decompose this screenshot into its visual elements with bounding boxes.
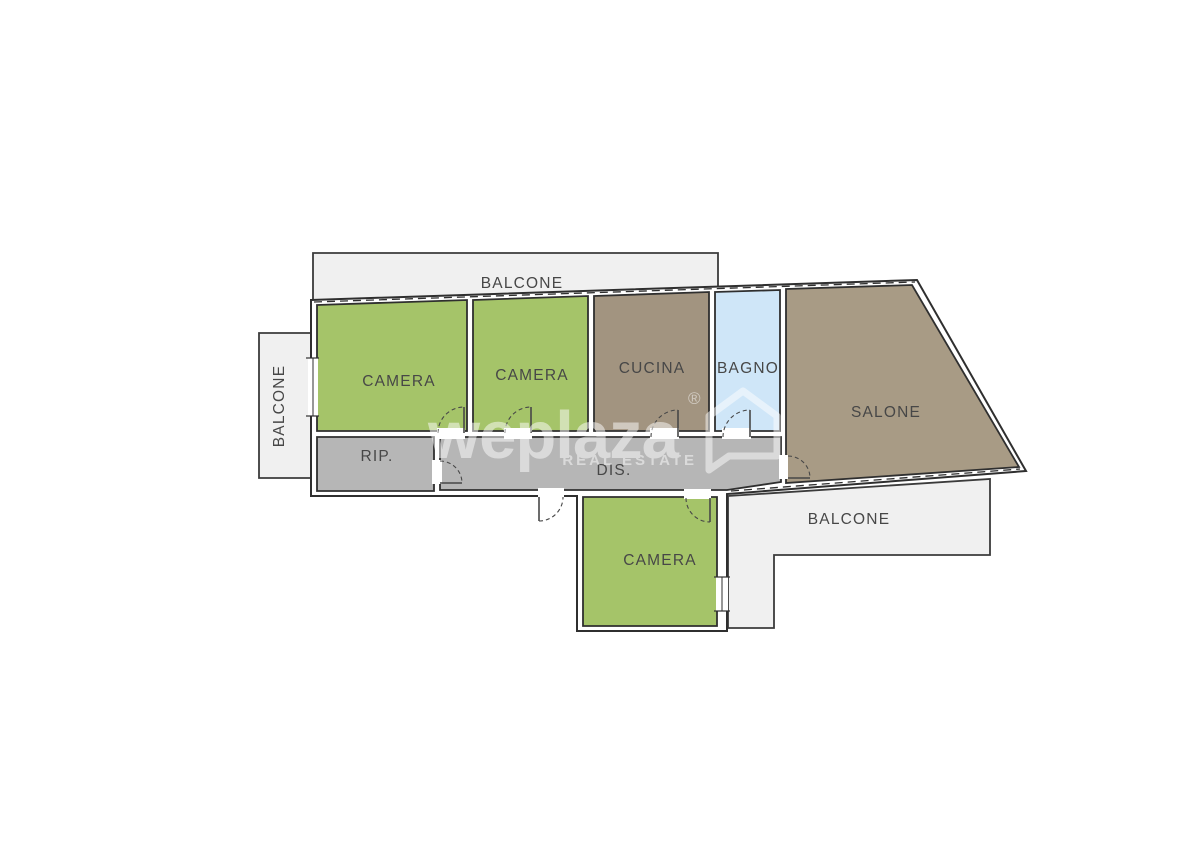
door-entrance	[539, 497, 563, 521]
label-camera-3: CAMERA	[623, 552, 697, 569]
watermark-tagline: REAL ESTATE	[562, 452, 697, 469]
label-salone: SALONE	[851, 404, 921, 421]
label-camera-1: CAMERA	[362, 373, 436, 390]
balcony-bottom	[728, 479, 990, 628]
floorplan-canvas: BALCONE BALCONE CAMERA CAMERA CUCINA BAG…	[0, 0, 1200, 848]
label-bagno: BAGNO	[717, 360, 779, 377]
label-camera-2: CAMERA	[495, 367, 569, 384]
label-cucina: CUCINA	[619, 360, 686, 377]
label-rip: RIP.	[361, 448, 394, 465]
label-balcone-bottom: BALCONE	[808, 511, 890, 528]
opening-entrance	[538, 488, 564, 498]
opening-bagno	[722, 428, 751, 439]
label-balcone-left: BALCONE	[271, 365, 288, 447]
opening-camera-3	[684, 489, 711, 499]
floorplan-svg: BALCONE BALCONE CAMERA CAMERA CUCINA BAG…	[0, 0, 1200, 848]
registered-mark-icon: ®	[688, 389, 701, 408]
room-salone	[786, 285, 1019, 483]
label-balcone-top: BALCONE	[481, 275, 563, 292]
window-camera-3	[714, 577, 730, 611]
opening-salone	[779, 455, 788, 479]
